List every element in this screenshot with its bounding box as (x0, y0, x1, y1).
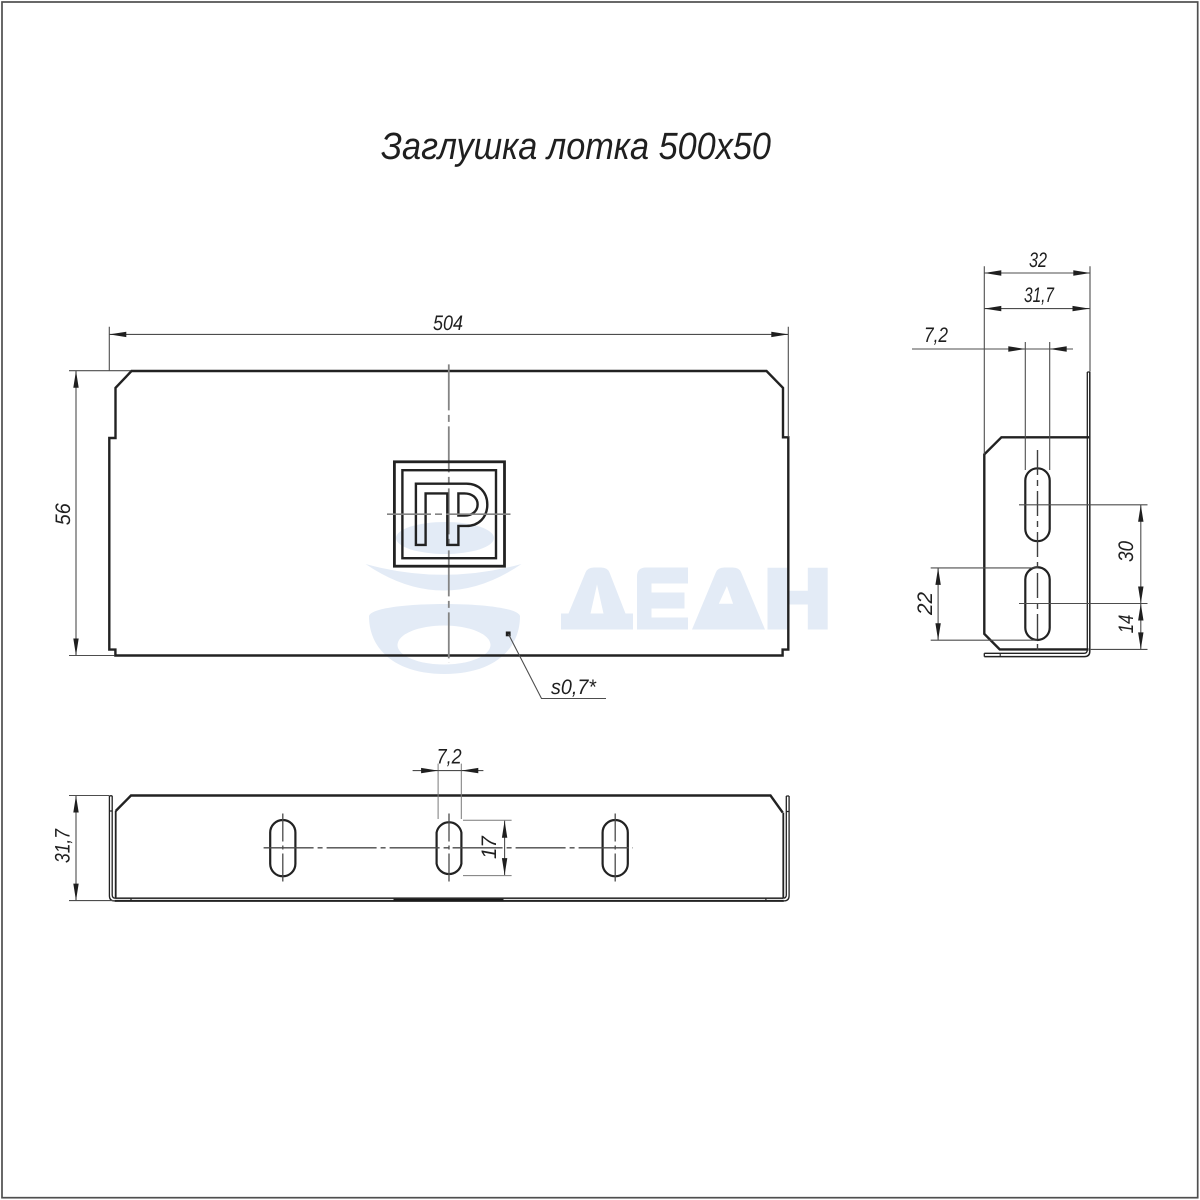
svg-text:30: 30 (1115, 541, 1138, 562)
svg-text:7,2: 7,2 (924, 324, 948, 347)
svg-text:17: 17 (478, 835, 501, 859)
svg-text:504: 504 (433, 312, 463, 335)
svg-text:7,2: 7,2 (437, 746, 462, 769)
svg-text:31,7: 31,7 (52, 828, 75, 863)
svg-text:Заглушка лотка 500x50: Заглушка лотка 500x50 (381, 126, 771, 168)
svg-text:56: 56 (52, 503, 75, 525)
svg-text:22: 22 (914, 592, 937, 616)
svg-text:s0,7*: s0,7* (551, 676, 597, 699)
svg-text:32: 32 (1029, 249, 1047, 272)
svg-text:31,7: 31,7 (1024, 284, 1055, 307)
svg-text:14: 14 (1115, 615, 1138, 634)
